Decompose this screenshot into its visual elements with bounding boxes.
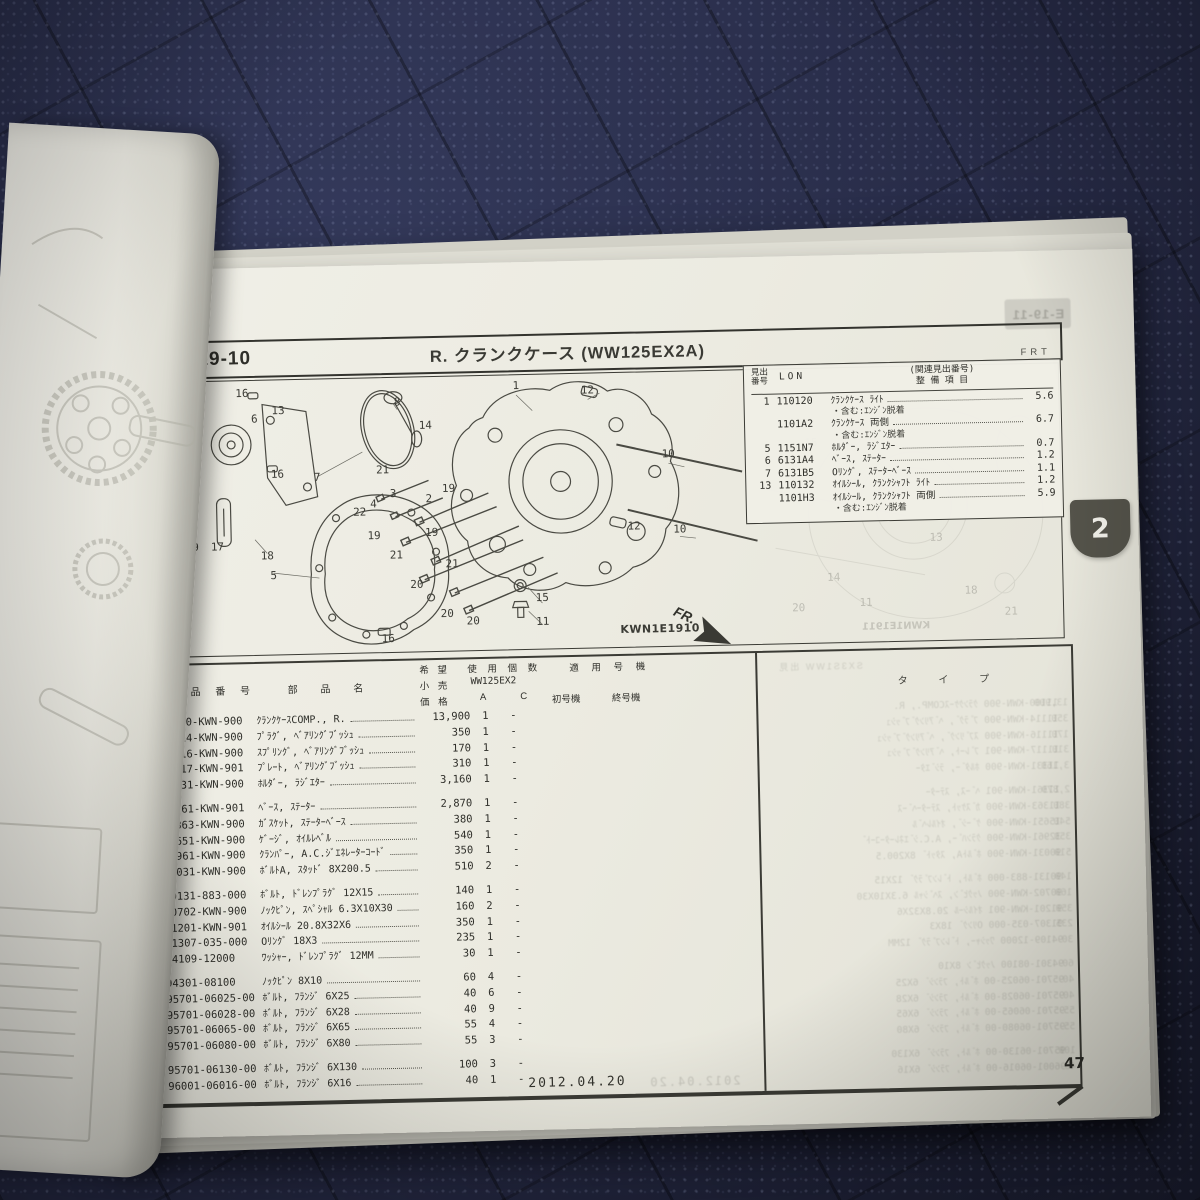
dotted-leader [322, 941, 419, 944]
part-number: 95701-06025-00 [160, 991, 262, 1008]
ghost-bleed-price: 55 [1025, 1020, 1075, 1036]
col-part-name: 部 品 名 [288, 679, 374, 696]
ghost-drawing-code: KWN1E1911 [862, 620, 930, 632]
ghost-bleed-price: 140 [1022, 870, 1072, 886]
ghost-bleed-price: 160 [1022, 886, 1072, 902]
retail-price: 100 [426, 1057, 478, 1073]
part-name: ﾎﾞﾙﾄ, ﾌﾗﾝｼﾞ 6X16 [264, 1077, 351, 1094]
qty-a: 3 [478, 1056, 508, 1071]
qty-a: 1 [474, 883, 504, 898]
ghost-bleed-price: 40 [1024, 989, 1074, 1005]
retail-price: 235 [423, 931, 475, 947]
retail-price: 350 [419, 725, 471, 741]
dotted-leader [320, 806, 416, 809]
dotted-leader [899, 445, 1023, 449]
callout-number: 20 [410, 578, 423, 591]
callout-number: 12 [581, 383, 594, 396]
photo-of-parts-manual: { "page": { "header": { "section_code": … [0, 0, 1200, 1200]
dotted-leader [369, 751, 415, 753]
ghost-callout-number: 21 [1005, 604, 1018, 617]
chapter-tab: 2 [1070, 499, 1131, 558]
dotted-leader [378, 893, 418, 895]
dotted-leader [351, 822, 417, 824]
callout-number: 14 [419, 419, 433, 432]
dotted-leader [379, 957, 420, 959]
retail-price: 310 [419, 757, 471, 773]
qty-c: - [501, 755, 527, 770]
ghost-callout-number: 20 [792, 601, 805, 614]
dotted-leader [376, 870, 418, 872]
ghost-bleed-price: 13,900 [1018, 696, 1068, 712]
qty-a: 3 [477, 1033, 507, 1048]
callout-number: 12 [627, 519, 640, 532]
dotted-leader [398, 909, 419, 910]
page-number: 47 [1064, 1054, 1085, 1072]
callout-number: 20 [467, 614, 480, 627]
retail-price: 140 [422, 883, 474, 899]
callout-number: 18 [261, 549, 274, 562]
ref-no: 7 [753, 468, 771, 481]
ghost-bleed-price: 40 [1024, 973, 1074, 989]
ref-col-no: 見出 番号 [751, 369, 775, 388]
ghost-bleed-price: 235 [1023, 918, 1073, 934]
callout-number: 17 [211, 540, 224, 553]
callout-number: 21 [376, 463, 389, 476]
col-price-1: 希 望 [419, 662, 450, 677]
part-name-cell: ﾎﾞﾙﾄA, ｽﾀｯﾄﾞ 8X200.5 [260, 862, 422, 880]
part-number: 95701-06065-00 [161, 1022, 263, 1039]
retail-price: 55 [425, 1018, 477, 1034]
dotted-leader [330, 783, 416, 786]
callout-number: 4 [370, 497, 377, 510]
qty-c: - [503, 827, 529, 842]
callout-number: 2 [425, 492, 432, 505]
ghost-bleed-price: 510 [1021, 846, 1071, 862]
retail-price: 13,900 [418, 709, 470, 725]
retail-price: 40 [424, 986, 476, 1002]
qty-a: 2 [473, 859, 503, 874]
dotted-leader [939, 495, 1024, 498]
qty-c: - [505, 929, 531, 944]
drawing-code: KWN1E1910 [620, 621, 700, 636]
part-number: 94301-08100 [160, 975, 262, 992]
qty-a: 9 [477, 1001, 507, 1016]
ref-hours: 5.6 [1025, 390, 1053, 403]
dotted-leader [390, 854, 417, 856]
ref-lon-code: 1101H3 [772, 492, 829, 506]
retail-price: 30 [423, 946, 475, 962]
qty-c: - [502, 811, 528, 826]
catalog-page: E-19-11 E-19-10 R. クランクケース (WW125EX2A) F… [111, 249, 1152, 1139]
ghost-bleed-price: 3,160 [1019, 759, 1069, 775]
callout-number: 10 [673, 522, 686, 535]
retail-price: 380 [420, 812, 472, 828]
qty-a: 1 [472, 796, 502, 811]
service-hours-header: 見出 番号 LON (関連見出番号) 整 備 項 目 [751, 362, 1053, 394]
qty-a: 1 [472, 772, 502, 787]
retail-price: 350 [421, 844, 473, 860]
issue-date: 2012.04.20 [528, 1074, 627, 1091]
part-name: ﾉｯｸﾋﾟﾝ 8X10 [262, 975, 322, 991]
retail-price: 510 [421, 859, 473, 875]
callout-number: 11 [536, 615, 549, 628]
callout-number: 21 [390, 548, 403, 561]
qty-c: - [503, 858, 529, 873]
retail-price: 3,160 [420, 772, 472, 788]
col-qty-ac: A C [480, 691, 544, 703]
part-number: 95701-06028-00 [161, 1006, 263, 1023]
dotted-leader [327, 980, 420, 983]
ref-col-lon: LON [775, 367, 831, 382]
qty-a: 1 [478, 1072, 508, 1087]
callout-number: 13 [271, 404, 284, 417]
ref-no: 13 [753, 481, 771, 494]
retail-price: 40 [425, 1002, 477, 1018]
callout-number: 16 [382, 632, 395, 645]
callout-number: 16 [271, 468, 284, 481]
callout-number: 1 [512, 379, 519, 392]
callout-number: 3 [390, 487, 397, 500]
col-model: WW125EX2 [470, 675, 516, 687]
parts-list-table: 見出 番号 部 品 番 号 部 品 名 希 望 小 売 価 格 使 用 個 数 … [131, 644, 1082, 1108]
col-price-2: 小 売 [419, 678, 450, 693]
service-hours-rows: 1110120ｸﾗﾝｸｹｰｽ ﾗｲﾄ5.6・含む:ｴﾝｼﾞﾝ脱着1101A2ｸﾗ… [751, 390, 1056, 517]
retail-price: 170 [419, 741, 471, 757]
col-first-serial: 初号機 [552, 691, 581, 706]
dotted-leader [355, 1012, 421, 1014]
callout-number: 16 [235, 387, 248, 400]
ghost-bleed-price: 55 [1025, 1004, 1075, 1020]
ref-hours: 0.7 [1026, 437, 1054, 450]
qty-a: 1 [475, 946, 505, 961]
ghost-issue-date: 2012.04.20 [648, 1073, 741, 1089]
dotted-leader [359, 767, 415, 769]
qty-c: - [506, 985, 532, 1000]
qty-a: 1 [471, 756, 501, 771]
qty-c: - [507, 1001, 533, 1016]
callout-number: 8 [394, 396, 401, 409]
part-number: 94109-12000 [159, 951, 261, 968]
qty-c: - [502, 771, 528, 786]
part-number: 95701-06080-00 [161, 1038, 263, 1055]
retail-price: 60 [424, 970, 476, 986]
parts-rows: 111100-KWN-900ｸﾗﾝｸｹｰｽCOMP., R.13,9001-11… [138, 696, 1080, 1096]
part-name: ﾜｯｼｬｰ, ﾄﾞﾚﾝﾌﾟﾗｸﾞ 12MM [261, 950, 373, 967]
ref-hours: 1.2 [1027, 449, 1055, 462]
dotted-leader [356, 1044, 422, 1046]
qty-c: - [500, 708, 526, 723]
part-name: ｹﾞｰｼﾞ, ｵｲﾙﾚﾍﾞﾙ [259, 832, 331, 848]
ghost-callout-number: 13 [929, 531, 942, 544]
ref-hours: 6.7 [1026, 413, 1054, 426]
part-number: 91307-035-000 [159, 935, 261, 952]
qty-c: - [501, 740, 527, 755]
dotted-leader [888, 398, 1023, 402]
callout-number: 19 [442, 482, 455, 495]
qty-a: 1 [475, 914, 505, 929]
qty-a: 6 [476, 985, 506, 1000]
ghost-bleed-price: 2,870 [1020, 783, 1070, 799]
part-name-cell: ﾎﾞﾙﾄ, ﾌﾗﾝｼﾞ 6X80 [263, 1035, 425, 1053]
callout-number: 20 [441, 607, 454, 620]
qty-a: 1 [473, 827, 503, 842]
part-name: ﾎﾞﾙﾄ, ﾌﾗﾝｼﾞ 6X80 [263, 1037, 350, 1054]
ref-hours: 1.1 [1027, 462, 1055, 475]
qty-a: 1 [475, 930, 505, 945]
retail-price: 55 [425, 1033, 477, 1049]
callout-number: 21 [445, 557, 458, 570]
callout-number: 19 [425, 526, 438, 539]
dotted-leader [934, 482, 1024, 485]
dotted-leader [351, 719, 415, 721]
callout-number: 22 [353, 505, 366, 518]
callout-numbers: 1613617814112716211932422192119189175202… [174, 375, 689, 649]
qty-c: - [506, 969, 532, 984]
qty-c: - [504, 898, 530, 913]
part-name: ﾍﾞｰｽ, ｽﾃｰﾀｰ [258, 801, 315, 817]
dotted-leader [336, 838, 417, 841]
col-qty: 使 用 個 数 [467, 660, 541, 676]
qty-c: - [501, 724, 527, 739]
ghost-bleed-price: 540 [1021, 815, 1071, 831]
retail-price: 160 [422, 899, 474, 915]
ghost-bleed-price: 350 [1023, 902, 1073, 918]
table-corner-bevel [1057, 1084, 1084, 1105]
ghost-callout-number: 14 [827, 571, 841, 584]
qty-c: - [508, 1056, 534, 1071]
dotted-leader [893, 421, 1023, 425]
dotted-leader [356, 1083, 422, 1085]
ghost-bleed-price: 60 [1024, 957, 1074, 973]
ghost-bleed-price: 310 [1019, 744, 1069, 760]
qty-a: 1 [473, 843, 503, 858]
ref-hours: 1.2 [1027, 474, 1055, 487]
chapter-tab-label: 2 [1091, 513, 1110, 544]
qty-c: - [507, 1032, 533, 1047]
dotted-leader [359, 735, 415, 737]
retail-price: 540 [421, 828, 473, 844]
ghost-bleed-price: 380 [1020, 799, 1070, 815]
qty-a: 1 [471, 740, 501, 755]
ghost-next-section-label: E-19-11 [1011, 306, 1064, 322]
service-hours-table: 見出 番号 LON (関連見出番号) 整 備 項 目 1110120ｸﾗﾝｸｹｰ… [743, 358, 1064, 524]
dotted-leader [355, 996, 421, 998]
qty-a: 4 [477, 1017, 507, 1032]
part-name-cell: ﾎﾙﾀﾞｰ, ﾗｼﾞｴﾀｰ [258, 775, 420, 793]
col-price-3: 価 格 [420, 694, 451, 709]
ref-no: 5 [752, 443, 770, 456]
retail-price: 350 [423, 915, 475, 931]
part-name-cell: ﾜｯｼｬｰ, ﾄﾞﾚﾝﾌﾟﾗｸﾞ 12MM [261, 948, 423, 966]
dotted-leader [362, 1067, 422, 1069]
qty-c: - [505, 945, 531, 960]
part-number: 95701-06130-00 [162, 1062, 264, 1079]
ghost-bleed-price: 30 [1023, 933, 1073, 949]
col-type: タ イ プ [897, 670, 1003, 687]
callout-number: 5 [270, 569, 277, 582]
callout-number: 19 [367, 529, 380, 542]
qty-a: 1 [471, 724, 501, 739]
ref-lon-code: 110120 [769, 395, 826, 409]
ghost-bleed-price: 170 [1019, 728, 1069, 744]
ghost-header-bleed: SX3S1WW 出見 [777, 659, 863, 674]
qty-a: 1 [470, 709, 500, 724]
ghost-callout-number: 11 [859, 596, 872, 609]
callout-number: 7 [314, 471, 321, 484]
part-name: Oﾘﾝｸﾞ 18X3 [261, 935, 317, 951]
ghost-bleed-price: 350 [1018, 712, 1068, 728]
dotted-leader [355, 1028, 421, 1030]
orientation-label: FRT [1020, 347, 1051, 359]
part-name: ﾎﾙﾀﾞｰ, ﾗｼﾞｴﾀｰ [258, 777, 325, 793]
qty-a: 2 [474, 898, 504, 913]
retail-price: 2,870 [420, 796, 472, 812]
qty-a: 4 [476, 969, 506, 984]
callout-number: 10 [662, 447, 675, 460]
ref-col-item: (関連見出番号) 整 備 項 目 [831, 362, 1053, 389]
retail-price: 40 [426, 1073, 478, 1089]
qty-c: - [504, 882, 530, 897]
dotted-leader [356, 925, 419, 927]
ref-no: 6 [753, 456, 771, 469]
ghost-callout-number: 18 [964, 583, 977, 596]
qty-a: 1 [472, 811, 502, 826]
ref-hours: 5.9 [1027, 487, 1055, 500]
part-number: 96001-06016-00 [162, 1078, 264, 1095]
part-name-cell: ﾎﾞﾙﾄ, ﾌﾗﾝｼﾞ 6X16 [264, 1075, 426, 1093]
ref-lon-code: 1101A2 [770, 418, 827, 432]
dotted-leader [890, 457, 1024, 461]
qty-c: - [507, 1016, 533, 1031]
dotted-leader [915, 470, 1024, 473]
col-last-serial: 終号機 [612, 690, 641, 705]
ref-no: 1 [751, 396, 769, 409]
qty-c: - [502, 795, 528, 810]
callout-number: 6 [251, 413, 258, 426]
qty-c: - [505, 914, 531, 929]
ghost-bleed-price: 350 [1021, 831, 1071, 847]
col-applicable: 適 用 号 機 [569, 658, 650, 674]
part-name: ﾎﾞﾙﾄA, ｽﾀｯﾄﾞ 8X200.5 [260, 863, 372, 880]
qty-c: - [503, 842, 529, 857]
callout-number: 15 [536, 591, 549, 604]
